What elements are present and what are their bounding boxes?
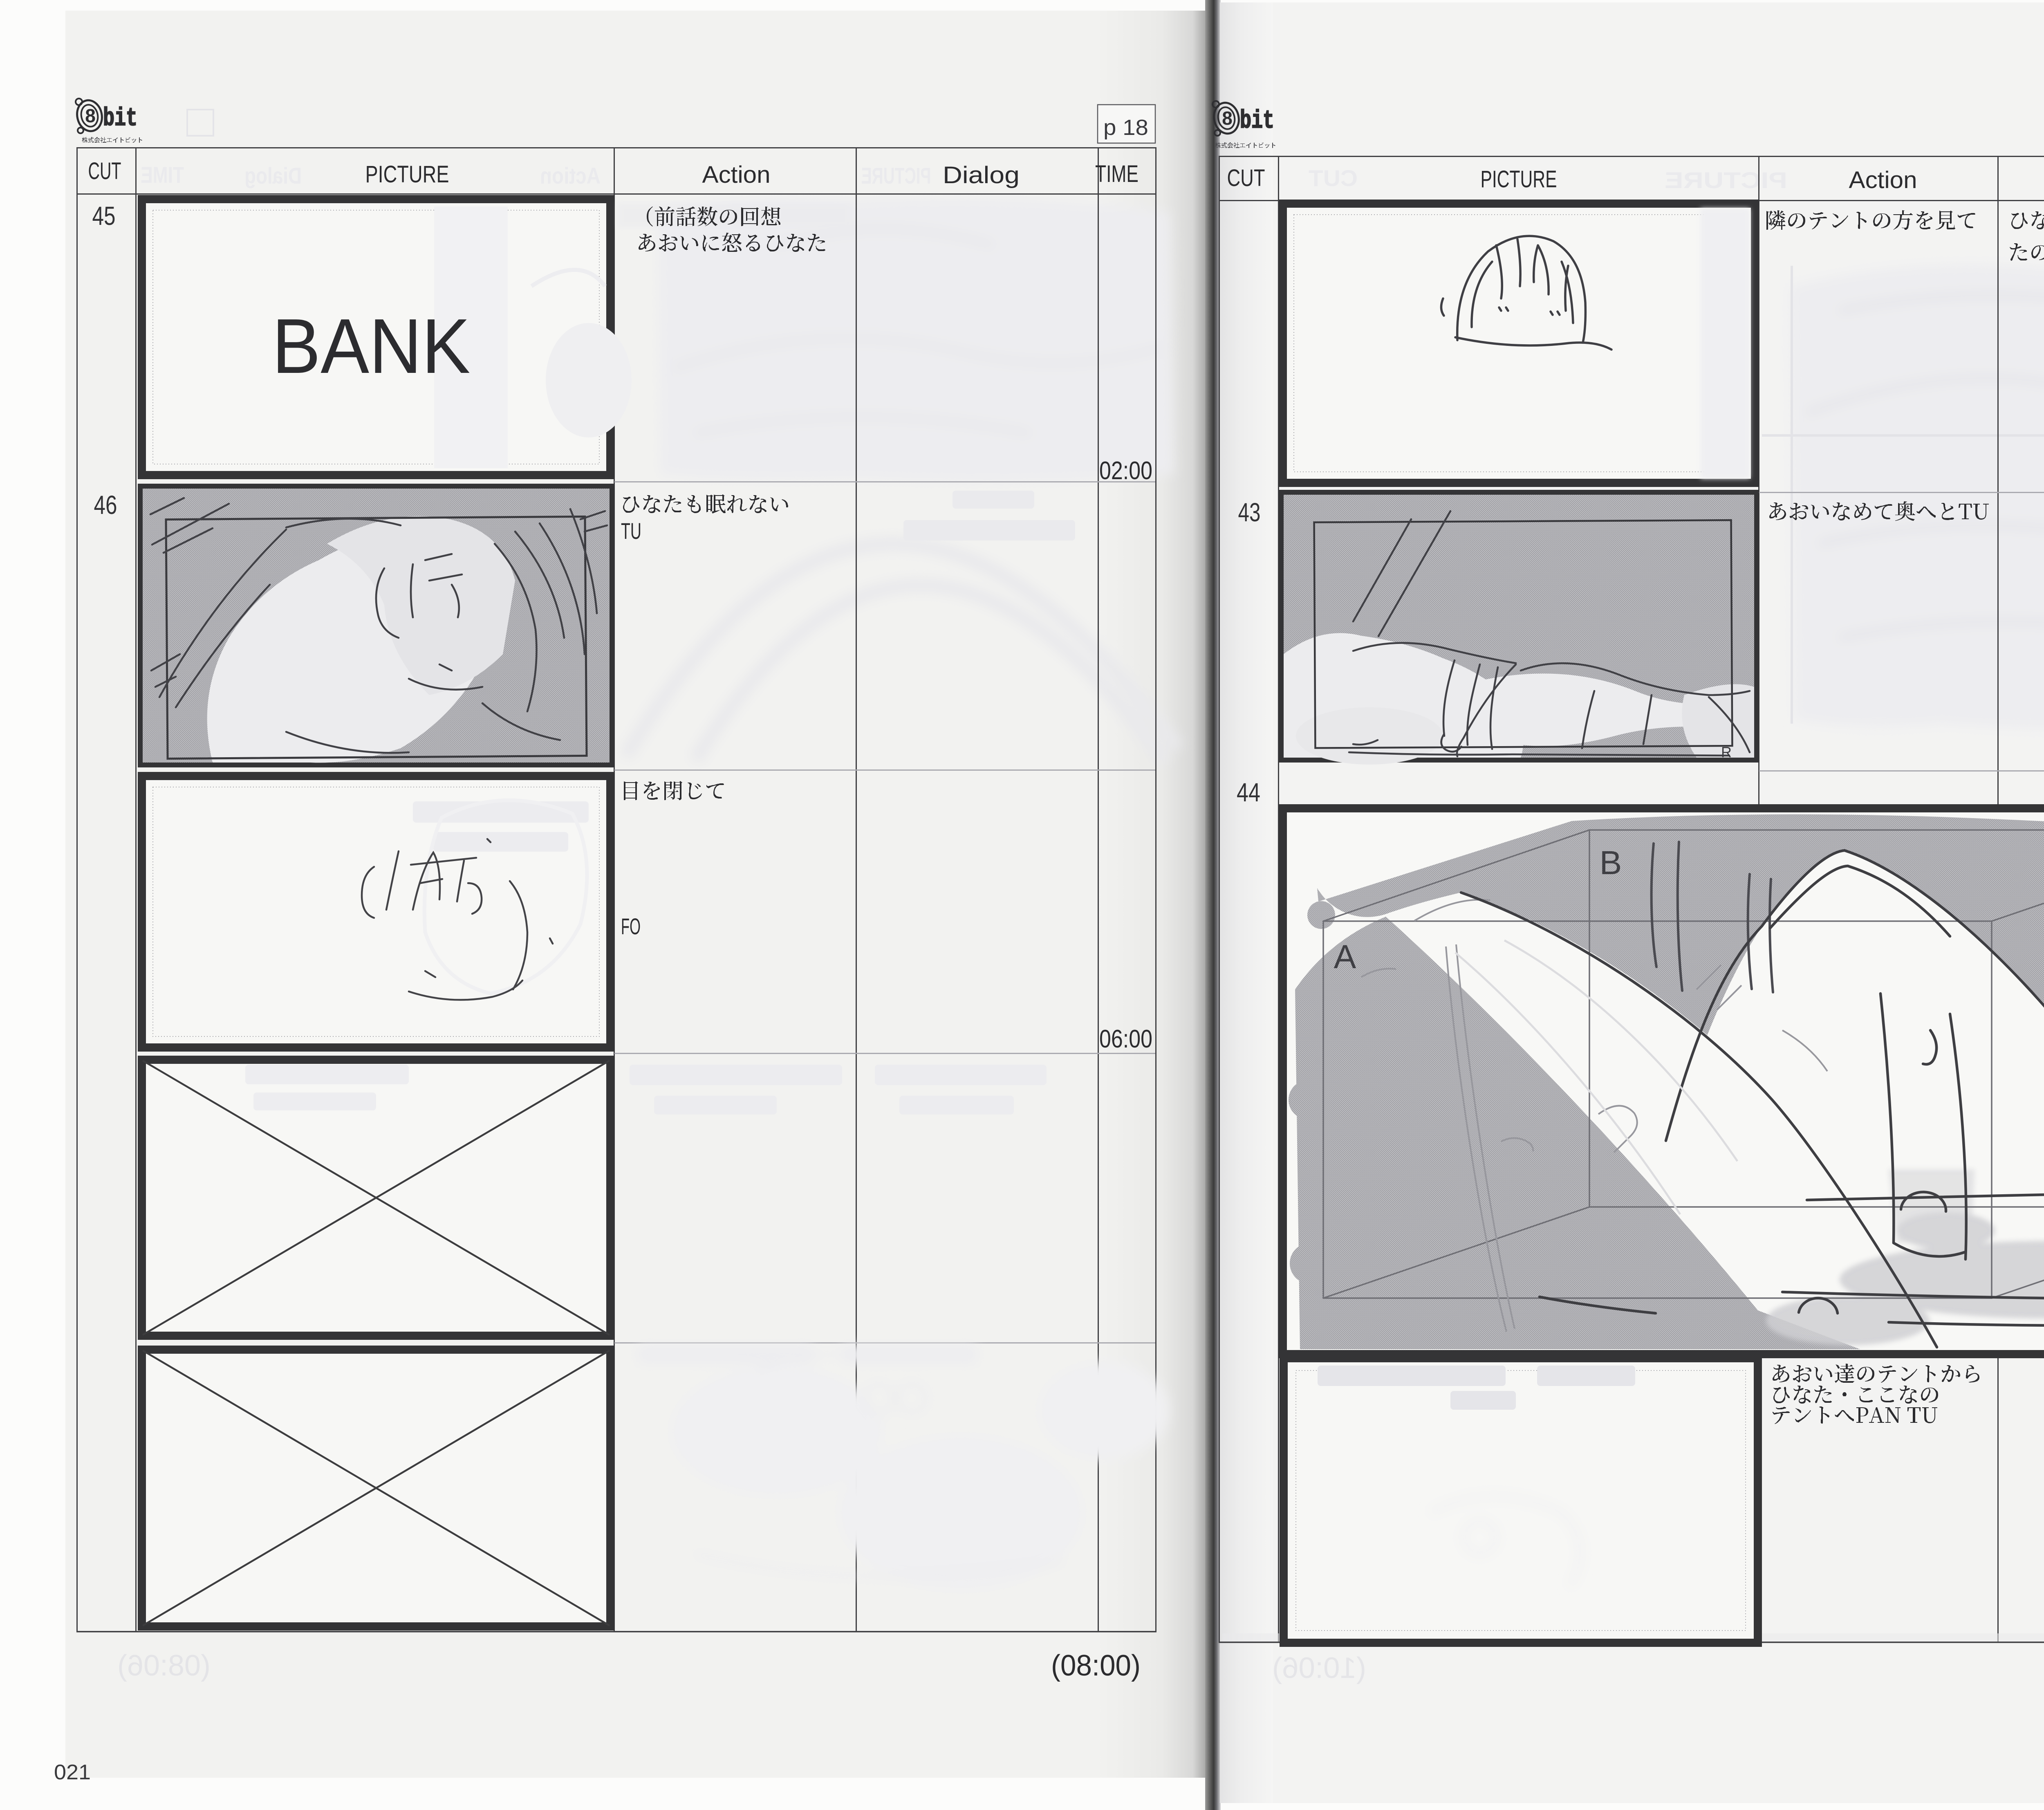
svg-text:Dialog: Dialog [244,163,302,188]
svg-text:PICTURE: PICTURE [1665,167,1787,193]
svg-text:PICTURE: PICTURE [861,163,931,188]
svg-text:FO: FO [621,913,641,939]
svg-text:44: 44 [1237,778,1260,807]
svg-text:(08:00): (08:00) [1051,1649,1141,1682]
svg-text:Action: Action [702,161,771,188]
svg-text:021: 021 [54,1761,91,1784]
svg-text:bit: bit [1240,106,1274,135]
svg-text:CUT: CUT [1309,165,1358,191]
svg-text:Action: Action [1849,167,1917,193]
svg-text:TIME: TIME [141,162,184,188]
svg-text:8: 8 [85,105,96,126]
svg-text:CUT: CUT [1227,165,1265,191]
svg-text:06:00: 06:00 [1099,1025,1152,1053]
svg-text:p 18: p 18 [1103,115,1148,140]
svg-text:R: R [1721,744,1732,760]
svg-text:Action: Action [540,163,601,188]
svg-text:TU: TU [621,518,641,544]
svg-text:A: A [1334,938,1356,976]
svg-text:43: 43 [1238,498,1261,527]
svg-text:CUT: CUT [88,158,121,184]
svg-text:(08:06): (08:06) [117,1649,211,1682]
svg-text:PICTURE: PICTURE [1481,166,1557,193]
svg-text:46: 46 [94,490,117,520]
svg-text:BANK: BANK [272,303,471,390]
svg-text:8: 8 [1222,108,1233,129]
svg-text:bit: bit [103,104,137,133]
svg-text:(10:06): (10:06) [1272,1652,1366,1684]
svg-text:45: 45 [92,201,116,231]
svg-text:Dialog: Dialog [943,162,1020,188]
svg-text:TIME: TIME [1095,161,1139,187]
svg-text:B: B [1600,844,1622,881]
svg-text:02:00: 02:00 [1099,457,1152,485]
svg-text:PICTURE: PICTURE [365,161,449,188]
